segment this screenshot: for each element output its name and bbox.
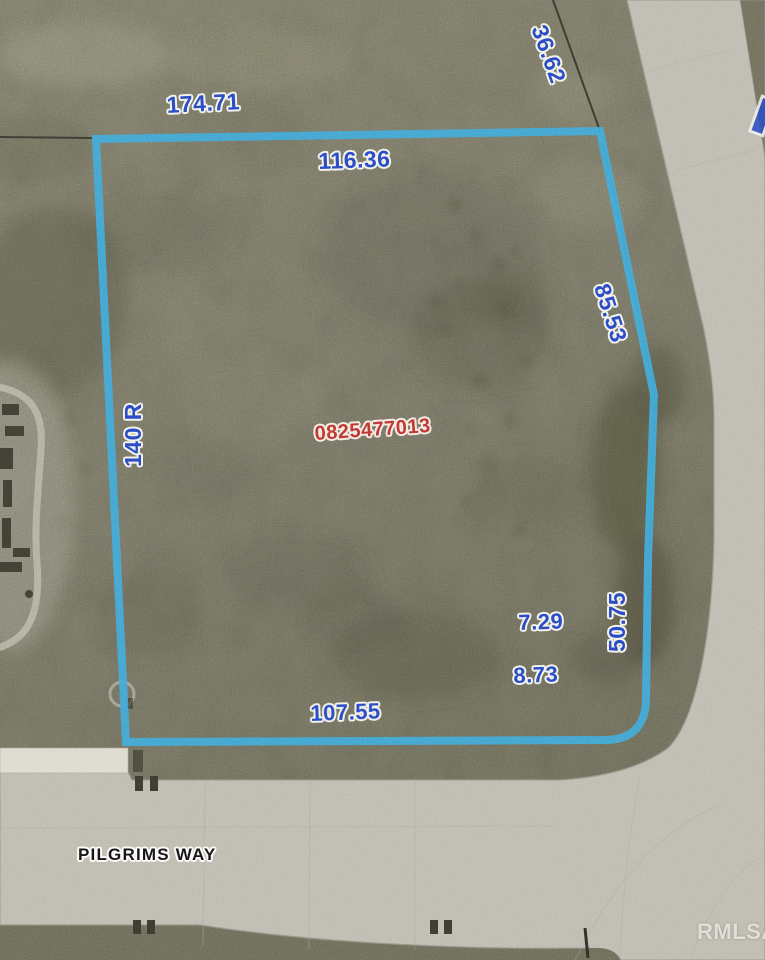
dimension-label-corner-seg-1: 7.29: [518, 610, 564, 634]
aerial-basemap: [0, 0, 765, 960]
dimension-label-top-inner: 116.36: [318, 147, 391, 173]
street-name-label: PILGRIMS WAY: [78, 846, 216, 863]
rmlsa-watermark: RMLSA: [697, 921, 765, 943]
dimension-label-top-outer: 174.71: [166, 90, 240, 117]
dimension-label-right-lower: 50.75: [606, 592, 629, 652]
plat-map: 174.71 116.36 36.62 85.53 140 R 08254770…: [0, 0, 765, 960]
grain-overlay: [0, 0, 765, 960]
dimension-label-left: 140 R: [122, 403, 145, 467]
dimension-label-corner-seg-2: 8.73: [513, 663, 559, 687]
dimension-label-bottom: 107.55: [310, 701, 381, 725]
